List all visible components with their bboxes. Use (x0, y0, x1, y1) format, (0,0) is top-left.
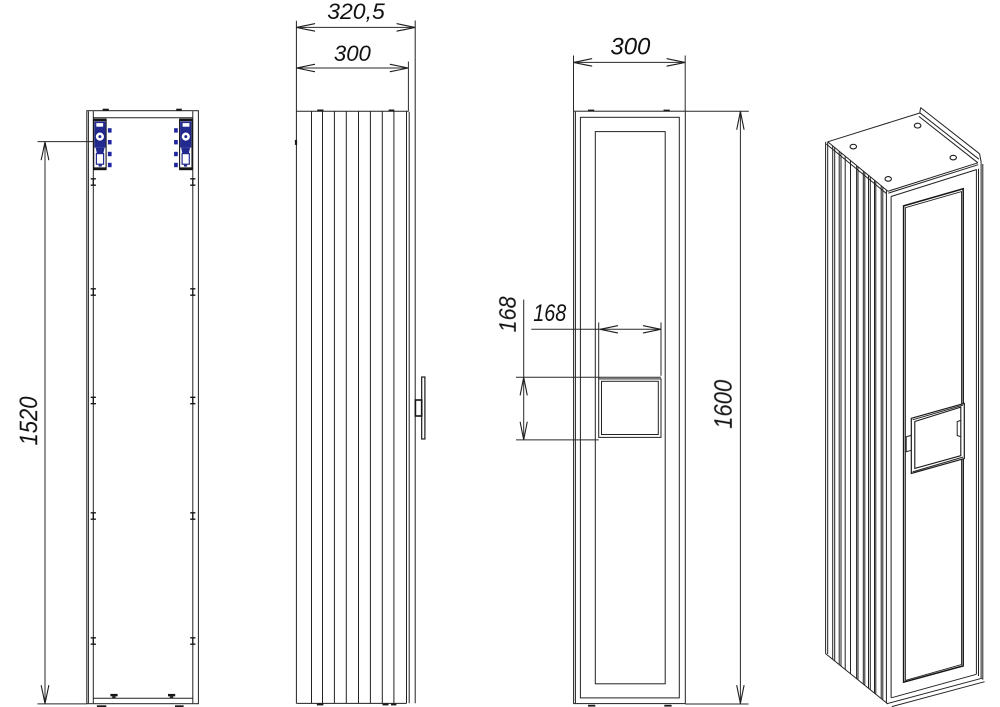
svg-text:1600: 1600 (710, 380, 738, 429)
svg-text:300: 300 (610, 34, 651, 61)
svg-text:1520: 1520 (15, 396, 43, 445)
svg-text:168: 168 (495, 296, 522, 333)
svg-text:300: 300 (334, 41, 371, 66)
svg-text:168: 168 (533, 300, 567, 327)
svg-text:320,5: 320,5 (327, 0, 385, 24)
